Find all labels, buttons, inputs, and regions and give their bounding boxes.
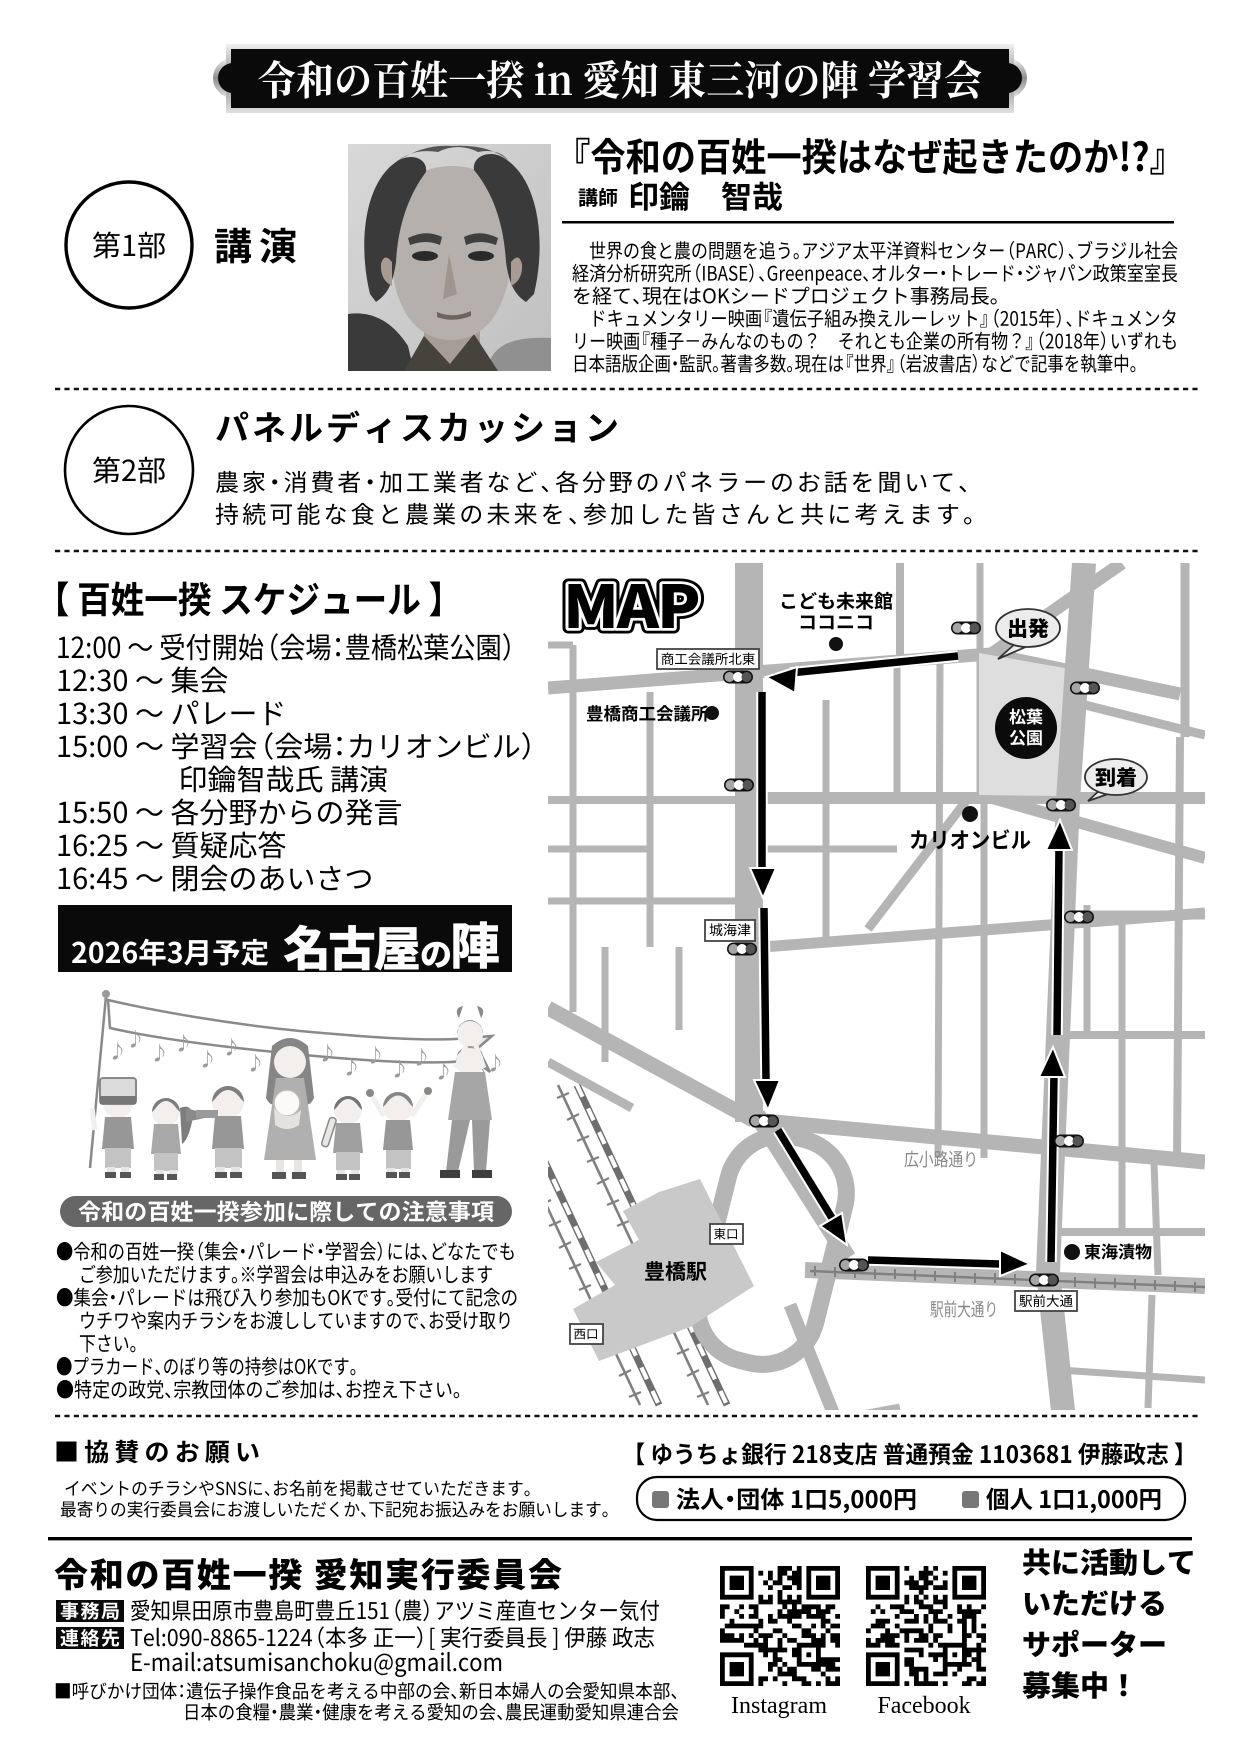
svg-text:Instagram: Instagram [731, 1693, 827, 1719]
svg-text:Facebook: Facebook [877, 1693, 970, 1719]
